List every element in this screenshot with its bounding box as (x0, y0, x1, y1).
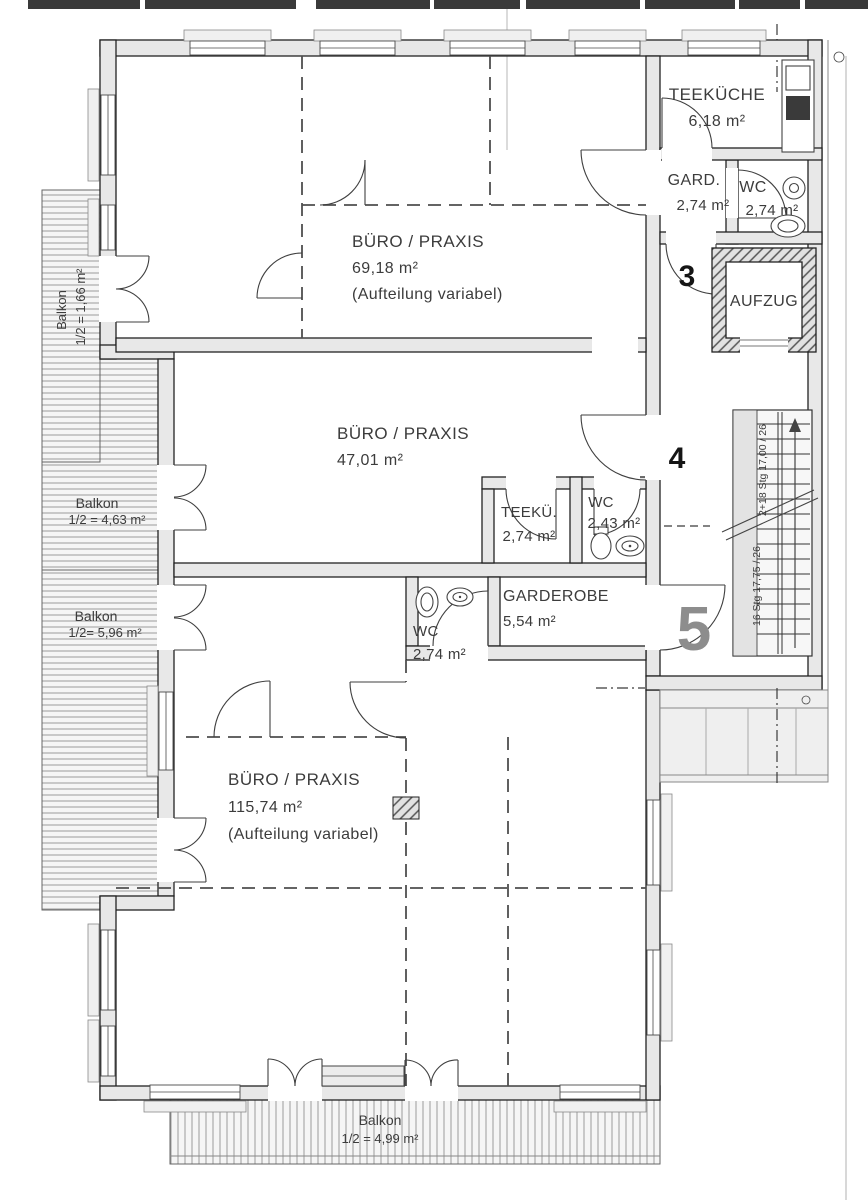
room-label: TEEKÜCHE (669, 85, 766, 104)
room-area: 2,43 m² (588, 515, 641, 532)
room-area: 2,74 m² (677, 197, 730, 214)
stair-flight-lower-label: 16 Stg 17,75 / 26 (751, 546, 763, 626)
room-label: GARDEROBE (503, 588, 609, 605)
floorplan-drawing: TEEKÜCHE 6,18 m² GARD. 2,74 m² WC 2,74 m… (0, 0, 868, 1200)
room-label: AUFZUG (730, 293, 798, 310)
unit-marker-5: 5 (677, 595, 711, 664)
room-label: BÜRO / PRAXIS (228, 770, 360, 789)
balcony-label: Balkon (76, 495, 119, 511)
balcony-label: Balkon (359, 1112, 402, 1128)
room-label: BÜRO / PRAXIS (352, 232, 484, 251)
room-label: GARD. (668, 172, 721, 189)
unit-marker-3: 3 (679, 260, 696, 293)
terrace (596, 688, 828, 784)
room-label: TEEKÜ. (501, 503, 557, 521)
column (393, 797, 419, 819)
floorplan-page: TEEKÜCHE 6,18 m² GARD. 2,74 m² WC 2,74 m… (0, 0, 868, 1200)
room-note: (Aufteilung variabel) (352, 286, 503, 303)
balcony-area: 1/2 = 4,99 m² (342, 1131, 420, 1146)
room-area: 5,54 m² (503, 613, 556, 630)
unit-marker-4: 4 (669, 442, 686, 475)
room-area: 2,74 m² (746, 202, 799, 219)
room-label: WC (739, 179, 766, 196)
kitchen-unit-icon (782, 60, 814, 152)
stair-flight-upper-label: 2+18 Stg 17,00 / 26 (757, 424, 769, 516)
room-area: 69,18 m² (352, 260, 419, 277)
balconies (42, 190, 660, 1164)
room-label: BÜRO / PRAXIS (337, 424, 469, 443)
balcony-label: Balkon (75, 608, 118, 624)
room-area: 115,74 m² (228, 799, 303, 816)
toilet-icon (591, 533, 611, 559)
room-note: (Aufteilung variabel) (228, 826, 379, 843)
room-area: 47,01 m² (337, 452, 404, 469)
room-label: WC (413, 623, 439, 640)
room-label: WC (588, 494, 614, 511)
room-area: 6,18 m² (688, 113, 745, 130)
room-area: 2,74 m² (503, 528, 556, 545)
room-area: 2,74 m² (413, 646, 466, 663)
balcony-area: 1/2 = 4,63 m² (69, 512, 147, 527)
balcony-label: Balkon (54, 290, 69, 330)
balcony-area: 1/2 = 1,66 m² (73, 268, 88, 346)
balcony-area: 1/2= 5,96 m² (68, 625, 142, 640)
survey-point-icon (834, 52, 844, 62)
